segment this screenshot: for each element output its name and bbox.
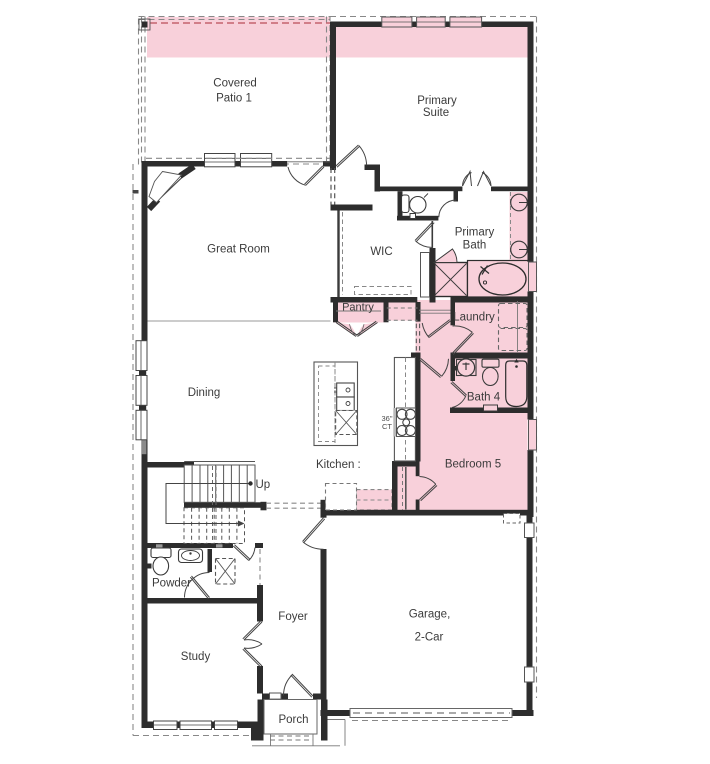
svg-text:Covered: Covered — [213, 78, 256, 90]
svg-text:Study: Study — [181, 651, 211, 663]
svg-text:2-Car: 2-Car — [415, 632, 444, 644]
svg-text:Primary: Primary — [417, 95, 457, 107]
svg-text:Suite: Suite — [423, 107, 449, 119]
svg-text:Pantry: Pantry — [342, 302, 374, 314]
svg-text:Porch: Porch — [278, 714, 308, 726]
svg-text:Foyer: Foyer — [278, 611, 308, 623]
svg-text:WIC: WIC — [370, 246, 392, 258]
svg-text:Up: Up — [256, 479, 271, 491]
svg-text:Bath 4: Bath 4 — [467, 391, 501, 403]
svg-text:Laundry: Laundry — [453, 311, 495, 323]
svg-text:Garage,: Garage, — [409, 609, 451, 621]
svg-text:Bath: Bath — [463, 239, 487, 251]
svg-text:Dining: Dining — [188, 387, 221, 399]
svg-text:Powder: Powder — [152, 578, 191, 590]
svg-text:Bedroom 5: Bedroom 5 — [445, 459, 501, 471]
svg-text:Patio 1: Patio 1 — [216, 93, 252, 105]
svg-text:Kitchen :: Kitchen : — [316, 459, 361, 471]
svg-text:Primary: Primary — [455, 227, 495, 239]
svg-text:CT: CT — [382, 422, 392, 431]
svg-text:Great Room: Great Room — [207, 244, 270, 256]
